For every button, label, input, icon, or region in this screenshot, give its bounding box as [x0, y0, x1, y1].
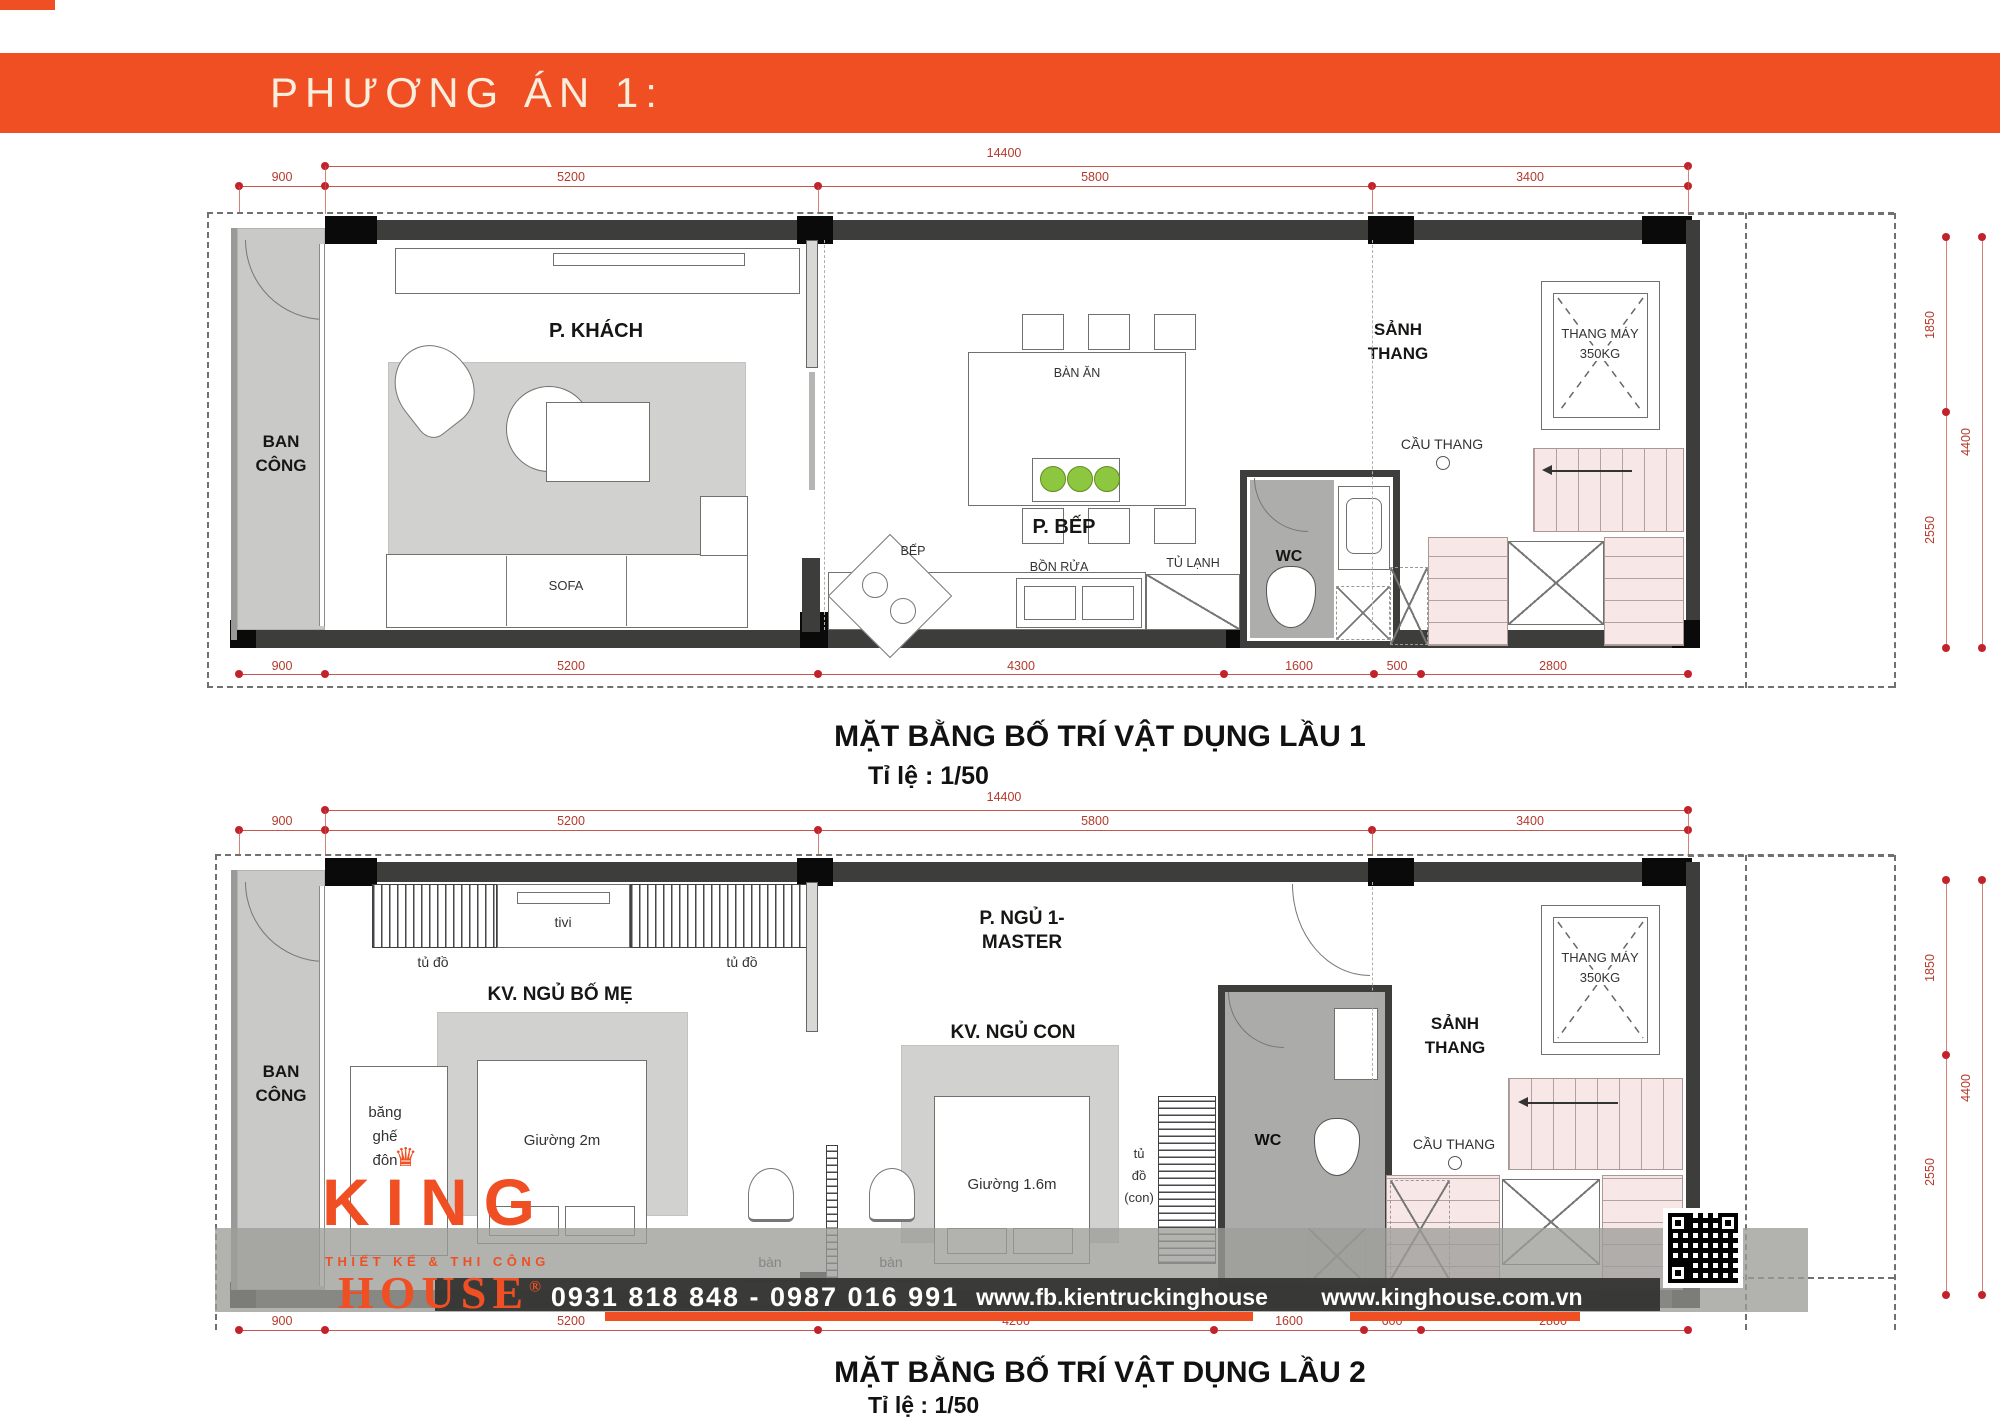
floor-plan-2: 14400 900 5200 5800 3400 BAN CÔNG tủ đồ …	[0, 0, 2000, 1414]
wardrobe-kid-label: đồ	[1132, 1168, 1146, 1183]
dim-label: 2550	[1923, 1158, 1937, 1186]
wardrobe-kid-label: tủ	[1134, 1146, 1145, 1161]
tv-label: tivi	[554, 914, 571, 930]
wardrobe-label: tủ đồ	[417, 954, 448, 970]
brand-name-top: KING	[322, 1164, 551, 1240]
dim-dot	[1417, 1326, 1425, 1334]
dim-dot	[235, 1326, 243, 1334]
footer-phone: 0931 818 848 - 0987 016 991	[551, 1282, 959, 1313]
dim-dot	[1978, 1291, 1986, 1299]
parents-zone-label: KV. NGỦ BỐ MẸ	[488, 984, 633, 1006]
qr-finder-core	[1675, 1270, 1681, 1276]
balcony-label: CÔNG	[256, 1086, 307, 1106]
qr-finder-icon	[1718, 1213, 1738, 1233]
dim-line	[325, 810, 1688, 811]
lot-line	[1894, 855, 1896, 1330]
dim-dot	[1942, 1051, 1950, 1059]
column	[1642, 858, 1692, 886]
wall	[325, 862, 1697, 882]
column	[325, 858, 377, 886]
stairs-marker	[1448, 1156, 1462, 1170]
dim-dot	[1942, 876, 1950, 884]
dim-line	[1982, 880, 1983, 1295]
desk-chair	[869, 1168, 915, 1222]
footer-underline	[1350, 1312, 1580, 1321]
plan2-title: MẶT BẰNG BỐ TRÍ VẬT DỤNG LẦU 2	[834, 1356, 1366, 1390]
wc-label: WC	[1255, 1132, 1282, 1150]
dim-label: 5200	[557, 1314, 585, 1328]
dim-dot	[814, 1326, 822, 1334]
stairs-label: CẦU THANG	[1413, 1136, 1495, 1152]
dim-dot	[1942, 1291, 1950, 1299]
qr-finder-icon	[1668, 1263, 1688, 1283]
partition-wall	[806, 882, 818, 1032]
dim-label: 5800	[1081, 814, 1109, 828]
wardrobe-label: tủ đồ	[726, 954, 757, 970]
wardrobe-kid-label: (con)	[1124, 1190, 1154, 1205]
brand-name-bottom: HOUSE®	[338, 1266, 547, 1319]
tv	[517, 892, 610, 904]
dim-dot	[321, 1326, 329, 1334]
stair-arrow	[1528, 1102, 1618, 1104]
dim-tick	[818, 830, 819, 856]
plan2-scale: Tỉ lệ : 1/50	[868, 1392, 979, 1419]
door-arc	[1292, 884, 1370, 976]
master-label: MASTER	[982, 932, 1062, 954]
dim-label: 900	[272, 1314, 293, 1328]
dim-tick	[1688, 810, 1689, 856]
wardrobe	[630, 884, 812, 948]
dim-dot	[1210, 1326, 1218, 1334]
dim-label: 1850	[1923, 954, 1937, 982]
dim-label: 5200	[557, 814, 585, 828]
desk-chair	[748, 1168, 794, 1222]
dim-dot	[1360, 1326, 1368, 1334]
dim-line	[239, 1330, 1688, 1331]
dim-dot	[1684, 1326, 1692, 1334]
dim-label: 1600	[1275, 1314, 1303, 1328]
column	[1368, 858, 1414, 886]
elevator-label: 350KG	[1577, 970, 1623, 985]
dim-label: 4400	[1959, 1074, 1973, 1102]
dim-line	[239, 830, 1688, 831]
dim-tick	[1372, 830, 1373, 856]
dim-label: 14400	[987, 790, 1022, 804]
wardrobe	[372, 884, 497, 948]
bed-parents-label: Giường 2m	[524, 1132, 601, 1149]
brand-name-bottom-text: HOUSE	[338, 1267, 529, 1318]
master-label: P. NGỦ 1-	[979, 908, 1064, 930]
footer-underline	[987, 1312, 1253, 1321]
dim-label: 3400	[1516, 814, 1544, 828]
dim-label: 900	[272, 814, 293, 828]
brand-reg-mark: ®	[529, 1279, 547, 1296]
qr-finder-core	[1725, 1220, 1731, 1226]
lot-line	[215, 854, 1894, 856]
dim-dot	[1978, 876, 1986, 884]
grid-line	[1372, 882, 1373, 1282]
kid-zone-label: KV. NGỦ CON	[951, 1022, 1076, 1044]
balcony-label: BAN	[263, 1062, 300, 1082]
elevator-label: THANG MÁY	[1558, 950, 1641, 965]
stair-arrow-head	[1518, 1097, 1528, 1107]
qr-finder-icon	[1668, 1213, 1688, 1233]
dim-tick	[325, 810, 326, 856]
qr-code	[1663, 1208, 1743, 1288]
dim-tick	[239, 830, 240, 856]
dim-line	[1946, 880, 1947, 1295]
qr-finder-core	[1675, 1220, 1681, 1226]
footer-facebook-url: www.fb.kientruckinghouse	[976, 1284, 1268, 1311]
stair-flight	[1508, 1078, 1683, 1170]
footer-website-url: www.kinghouse.com.vn	[1321, 1284, 1582, 1311]
stair-hall-label: SẢNH	[1431, 1014, 1479, 1034]
bench-label: băng	[368, 1104, 401, 1121]
lot-line	[1688, 855, 1894, 857]
stair-hall-label: THANG	[1425, 1038, 1485, 1058]
bed-kid-label: Giường 1.6m	[967, 1176, 1056, 1193]
